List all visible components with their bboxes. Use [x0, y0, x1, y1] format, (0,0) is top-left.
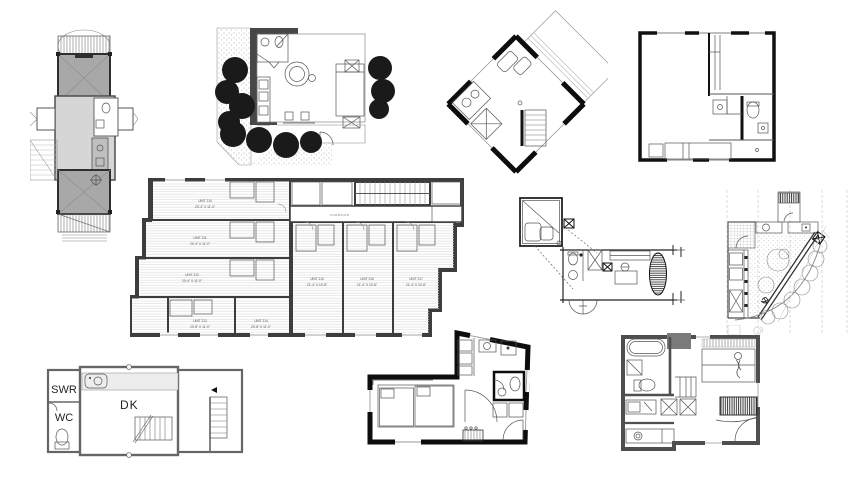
bathroom: [747, 102, 768, 133]
floor-plan-l-unit: [365, 330, 540, 465]
svg-text:20'-8" X 11'-0": 20'-8" X 11'-0": [251, 325, 271, 329]
tiled-area: [728, 222, 755, 248]
floor-plan-courtyard-diagonal: [718, 190, 852, 335]
side-stair: [210, 387, 227, 452]
entry-door: [569, 300, 597, 314]
window-symbol-2: [603, 263, 612, 271]
floor-plan-container-house: [30, 8, 138, 244]
loft-steps: [675, 377, 696, 397]
closet: [709, 35, 720, 90]
tree-canopy-right: [368, 56, 395, 119]
svg-text:UNIT 215: UNIT 215: [310, 277, 324, 281]
svg-text:UNIT 210: UNIT 210: [198, 199, 212, 203]
closet: [493, 403, 523, 417]
stair: [355, 182, 430, 205]
desk-and-chair: [615, 263, 637, 284]
direction-arrow: [211, 387, 217, 393]
kitchen-counter: [626, 429, 674, 443]
svg-text:20'-4" X 11'-0": 20'-4" X 11'-0": [182, 279, 202, 283]
toilet: [56, 429, 68, 445]
svg-text:UNIT 213: UNIT 213: [193, 319, 207, 323]
kitchen-counter: [92, 138, 108, 174]
bed: [702, 339, 755, 382]
svg-text:20'-8" X 11'-0": 20'-8" X 11'-0": [190, 325, 210, 329]
washer: [463, 427, 483, 441]
kitchen-strip: [728, 250, 748, 318]
bathroom: [94, 98, 118, 136]
cabin-outline: [448, 36, 584, 172]
floor-plan-rotated-cabin: [443, 10, 608, 182]
shaft-x: [588, 250, 602, 270]
floor-plan-detail-room: [515, 193, 693, 320]
counter: [610, 251, 650, 260]
toilet-area: [568, 250, 583, 281]
detail-inset: [520, 198, 562, 246]
floor-plan-courtyard-trees: [213, 22, 413, 170]
bed: [525, 223, 541, 241]
floor-plan-apartment-level: CORRIDOR UNIT 210 20'-4" X 11'-0" UNI: [130, 170, 470, 340]
swr-label: SWR: [51, 384, 77, 396]
exterior-stair: [30, 140, 57, 180]
entry-door: [503, 420, 523, 440]
sink: [758, 123, 768, 133]
svg-text:UNIT 217: UNIT 217: [409, 277, 423, 281]
bathroom: [623, 337, 674, 395]
toilet: [639, 379, 655, 391]
top-deck: [58, 36, 110, 54]
futon-roll: [650, 253, 667, 295]
fixture-band: [756, 222, 818, 233]
wc-label: WC: [55, 412, 73, 424]
faint-scribble: [754, 327, 763, 334]
window-gaps: [696, 337, 758, 443]
floor-plan-collage: CORRIDOR UNIT 210 20'-4" X 11'-0" UNI: [0, 0, 852, 479]
upper-room: [778, 192, 800, 222]
column-marker-top: [127, 365, 132, 370]
svg-text:20'-4" X 11'-0": 20'-4" X 11'-0": [190, 242, 210, 246]
svg-text:20'-4" X 11'-0": 20'-4" X 11'-0": [195, 205, 215, 209]
dk-label: DK: [120, 398, 139, 412]
shower-area: [713, 96, 742, 114]
left-wing: [37, 108, 55, 130]
vanity: [626, 400, 656, 414]
corridor-label: CORRIDOR: [330, 213, 349, 217]
courtyard: [748, 233, 815, 318]
counter-band: [82, 373, 178, 390]
wc-fixtures: [49, 403, 69, 449]
faint-square: [728, 325, 740, 335]
floor-plan-bath-studio: [610, 325, 775, 465]
svg-text:21'-4" X 10'-8": 21'-4" X 10'-8": [307, 283, 327, 287]
column-marker-bottom: [127, 453, 132, 458]
svg-text:UNIT 214: UNIT 214: [254, 319, 268, 323]
floor-plan-square-studio: [637, 30, 777, 166]
svg-text:UNIT 216: UNIT 216: [360, 277, 374, 281]
shaft-x-boxes: [661, 399, 696, 415]
interior: [257, 34, 365, 122]
exterior-wall: [640, 33, 774, 160]
window-symbol: [564, 219, 574, 228]
bed: [373, 380, 454, 427]
svg-text:21'-4" X 10'-8": 21'-4" X 10'-8": [357, 283, 377, 287]
bed: [649, 143, 731, 159]
bathroom: [494, 372, 524, 400]
toilet: [747, 102, 759, 118]
sink: [569, 271, 578, 280]
svg-text:UNIT 211: UNIT 211: [193, 236, 207, 240]
floor-plan-swr-dk: SWR WC DK: [45, 357, 245, 462]
svg-text:21'-4" X 10'-8": 21'-4" X 10'-8": [406, 283, 426, 287]
kitchen-column: [458, 338, 474, 376]
bottom-steps: [62, 235, 107, 241]
window-gaps: [657, 31, 765, 162]
corridor: [290, 206, 462, 222]
interior-door: [465, 390, 497, 422]
svg-text:UNIT 212: UNIT 212: [185, 273, 199, 277]
